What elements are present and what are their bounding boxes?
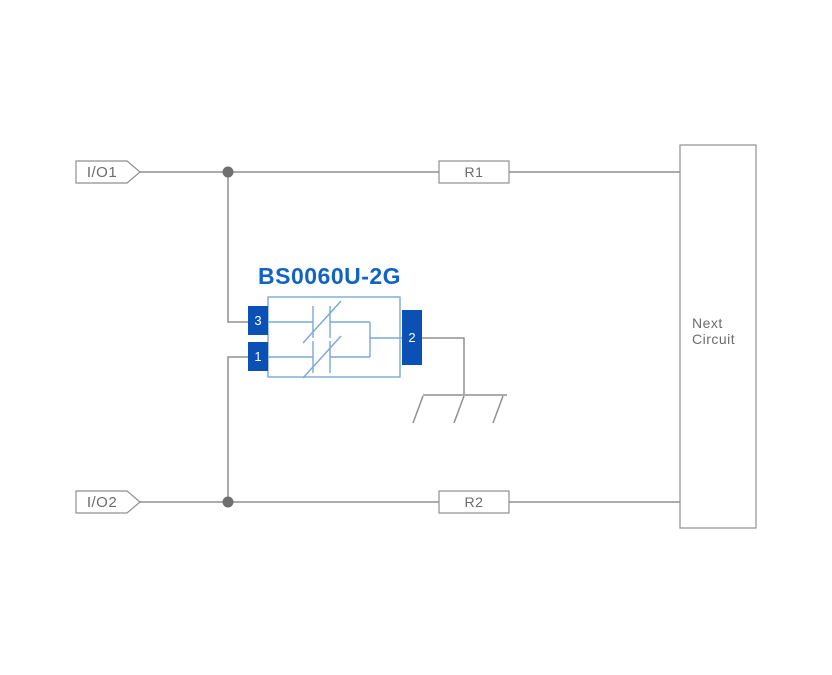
r2-label: R2 xyxy=(439,491,509,513)
chassis-ground-symbol xyxy=(413,395,507,423)
pin2-to-ground-wire xyxy=(422,338,464,394)
next-circuit-label-line1: Next xyxy=(692,316,735,332)
pin3-label: 3 xyxy=(248,306,268,335)
junction-dot-io1 xyxy=(223,167,234,178)
io1-branch-wire-to-pin3 xyxy=(228,172,248,322)
tvs-component xyxy=(248,297,422,378)
io2-label: I/O2 xyxy=(76,491,128,513)
component-title: BS0060U-2G xyxy=(258,263,401,290)
next-circuit-label: Next Circuit xyxy=(692,316,735,347)
next-circuit-label-line2: Circuit xyxy=(692,332,735,348)
io2-branch-wire-to-pin1 xyxy=(228,357,248,502)
junction-dot-io2 xyxy=(223,497,234,508)
io1-label: I/O1 xyxy=(76,161,128,183)
schematic-canvas: I/O1 I/O2 R1 R2 BS0060U-2G 3 1 2 Next Ci… xyxy=(0,0,832,675)
r1-label: R1 xyxy=(439,161,509,183)
pin2-label: 2 xyxy=(402,310,422,365)
pin1-label: 1 xyxy=(248,342,268,371)
